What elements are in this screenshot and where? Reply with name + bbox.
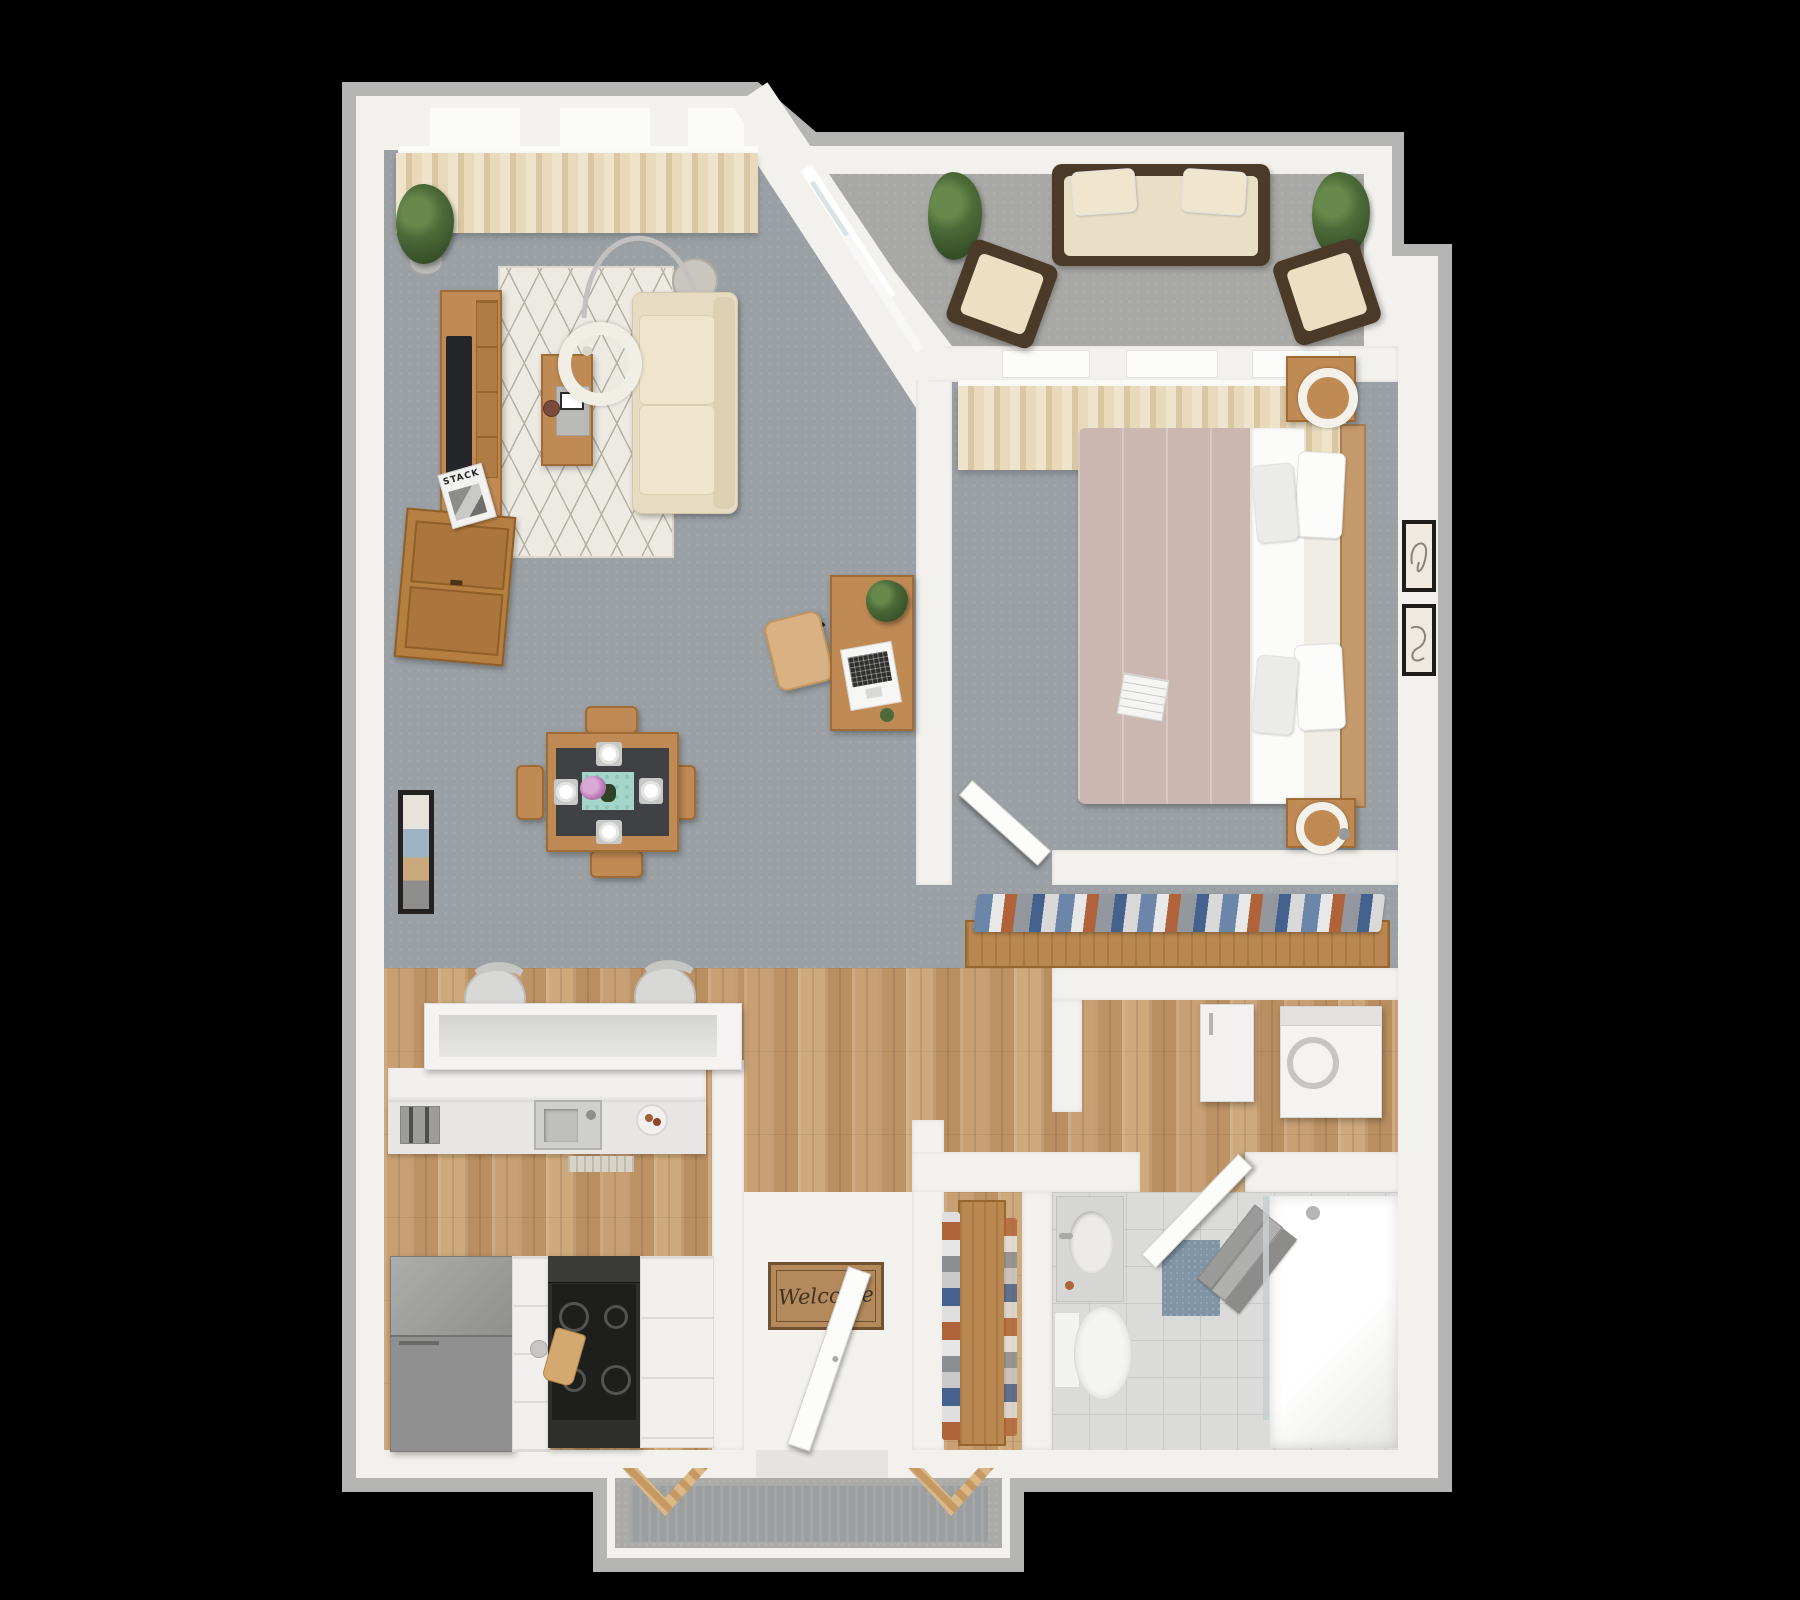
refrigerator-lid — [391, 1257, 513, 1337]
dining-chair — [585, 706, 638, 734]
console-shelf — [476, 300, 498, 478]
toaster — [400, 1106, 440, 1144]
bed-pillow — [1251, 462, 1300, 543]
place-setting — [554, 779, 578, 805]
arc-lamp-bulb — [582, 346, 592, 356]
bedroom-window — [1126, 350, 1218, 378]
outdoor-sofa — [1052, 164, 1270, 266]
toilet-bowl — [1074, 1306, 1132, 1400]
plate — [556, 782, 576, 802]
sofa — [632, 292, 738, 514]
art-squiggle — [1406, 524, 1432, 588]
laptop-keyboard — [847, 651, 892, 687]
desk-succulent — [880, 708, 894, 722]
sink-faucet — [1059, 1233, 1073, 1239]
outdoor-sofa-pillow — [1181, 168, 1248, 216]
stove-burner — [604, 1305, 628, 1329]
kitchen-mat — [568, 1156, 634, 1172]
decor-dish — [543, 400, 560, 417]
outdoor-chair-cushion — [1286, 251, 1369, 332]
nightstand-vase — [1338, 828, 1350, 840]
laptop-trackpad — [865, 686, 882, 699]
shoes-row — [942, 1212, 960, 1440]
place-setting — [596, 820, 622, 844]
tv-screen — [446, 336, 472, 484]
curtain-rail — [398, 146, 758, 153]
stove-burner — [559, 1302, 589, 1332]
laundry-cabinet — [1200, 1004, 1254, 1102]
living-room-wall-art — [398, 790, 434, 914]
plate — [599, 822, 619, 842]
table-lamp — [1298, 368, 1358, 428]
bathroom-top-wall-right — [1245, 1152, 1398, 1192]
sideboard-handle — [450, 580, 462, 586]
stove-burner — [601, 1365, 631, 1395]
bed-magazine — [1117, 672, 1170, 721]
sideboard-cabinet — [394, 507, 517, 666]
closet-laundry-wall — [1052, 1000, 1082, 1112]
bedroom-wall-art — [1402, 520, 1436, 592]
washer-top-panel — [1281, 1007, 1381, 1026]
kitchen-sink — [534, 1100, 602, 1150]
kitchen-counter-face — [388, 1068, 706, 1102]
bedroom-window — [1002, 350, 1090, 378]
bedroom-wall-art — [1402, 604, 1436, 676]
fruit — [645, 1114, 653, 1122]
shoe-rack — [958, 1200, 1006, 1446]
outdoor-sofa-pillow — [1071, 168, 1138, 216]
sofa-seat-cushion — [639, 315, 715, 405]
fruit-bowl — [636, 1104, 668, 1136]
floor-plan-canvas: STACK — [0, 0, 1800, 1600]
place-setting — [639, 778, 663, 804]
sofa-seat-cushion — [639, 405, 715, 495]
entry-threshold — [756, 1450, 888, 1478]
cabinet-handle — [1209, 1013, 1213, 1035]
sink-faucet — [586, 1110, 596, 1120]
bed-pillow — [1294, 643, 1346, 731]
soap-bottle — [1065, 1281, 1074, 1290]
arc-lamp-shade — [558, 322, 642, 406]
art-squiggle — [1406, 608, 1432, 672]
stove-control-panel — [548, 1256, 640, 1283]
sink-basin — [544, 1109, 578, 1142]
bedroom-bottom-wall — [1052, 850, 1398, 885]
shower-head — [1306, 1206, 1320, 1220]
washer-drum-door — [1287, 1037, 1339, 1089]
washer — [1280, 1006, 1382, 1118]
laptop — [840, 641, 902, 711]
living-room-window — [560, 108, 650, 148]
refrigerator-handle — [399, 1341, 439, 1345]
bathroom-top-wall-left — [912, 1152, 1140, 1192]
kitchen-cabinet — [640, 1256, 714, 1448]
shower-glass-panel — [1263, 1196, 1269, 1420]
plate — [641, 781, 661, 801]
bed-pillow — [1251, 654, 1300, 735]
place-setting — [596, 742, 622, 766]
sink-basin — [1069, 1211, 1113, 1273]
sideboard-door — [405, 586, 504, 656]
shoes-row — [1004, 1218, 1017, 1436]
living-bedroom-divider-wall — [916, 352, 952, 885]
refrigerator — [390, 1256, 514, 1452]
bed-pillow — [1294, 451, 1346, 539]
vanity-sink — [1056, 1196, 1124, 1302]
hanging-clothes — [973, 894, 1386, 932]
bathroom-left-wall — [1022, 1192, 1052, 1450]
breakfast-bar-top — [439, 1015, 717, 1057]
fruit — [653, 1118, 661, 1126]
dining-chair — [516, 765, 544, 820]
closet-bottom-wall — [1052, 968, 1398, 1000]
kitchen-jar — [530, 1340, 548, 1358]
magazine-photo — [448, 483, 487, 521]
toilet — [1054, 1306, 1132, 1398]
outdoor-chair-cushion — [959, 252, 1045, 335]
bed-duvet — [1078, 428, 1256, 804]
living-room-window — [430, 108, 520, 148]
living-room-window — [688, 108, 744, 148]
sofa-back-cushion — [713, 297, 735, 509]
kitchen-entry-wall — [712, 1060, 744, 1450]
front-door-handle — [832, 1355, 840, 1363]
breakfast-bar — [424, 1003, 742, 1070]
dining-chair — [590, 850, 643, 878]
plate — [599, 744, 619, 764]
